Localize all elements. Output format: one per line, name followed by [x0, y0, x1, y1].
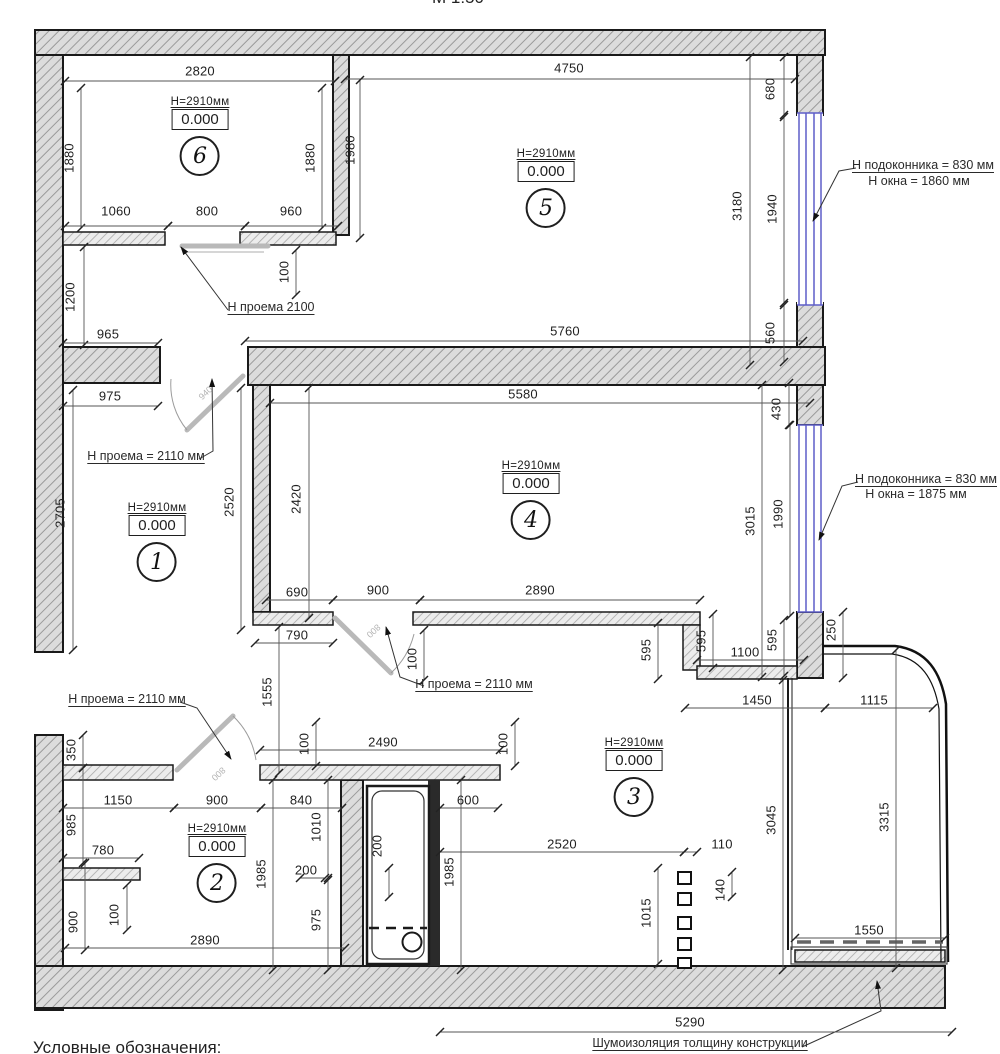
leader-lines [180, 168, 881, 1047]
floor-plan-page: 2820475018801880198010608009601001200965… [0, 0, 1000, 1054]
bathtub [367, 786, 429, 964]
door-hall [171, 376, 243, 430]
floor-plan-canvas [0, 0, 1000, 1054]
balcony-partition [788, 678, 792, 950]
glass-block-partition [678, 872, 691, 968]
door-room2 [177, 716, 256, 770]
door-room4 [335, 618, 414, 673]
window-lower [797, 425, 823, 612]
sliding-door-room6 [182, 246, 268, 252]
balcony-glazing [791, 646, 948, 964]
interior-walls [63, 55, 825, 966]
